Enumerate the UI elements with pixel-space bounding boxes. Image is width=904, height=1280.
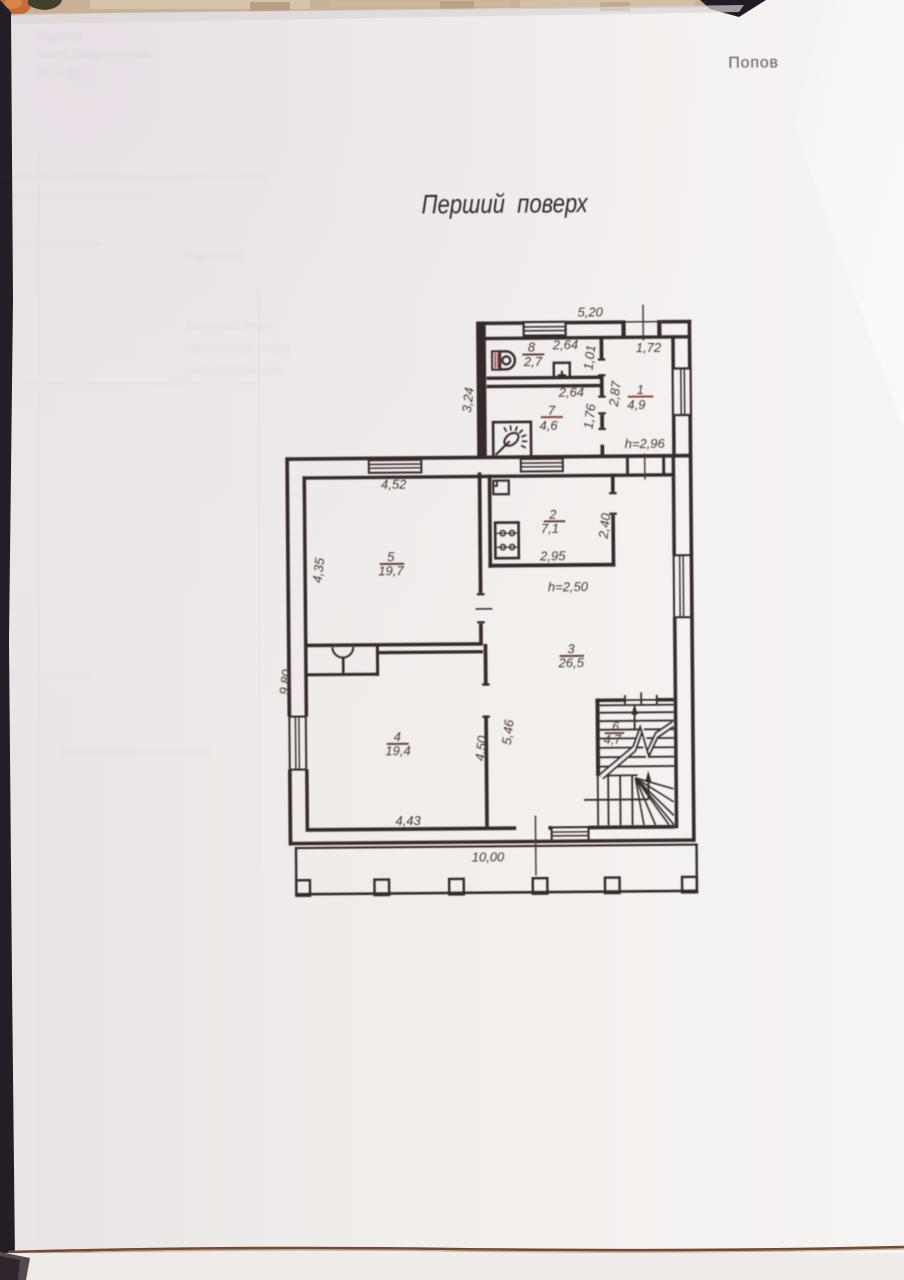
svg-text:Попов: Попов — [728, 54, 779, 71]
svg-text:h=2,50: h=2,50 — [548, 579, 589, 594]
svg-text:споруди громадян: споруди громадян — [185, 363, 286, 377]
svg-text:1,01: 1,01 — [581, 344, 599, 371]
svg-text:1: 1 — [637, 382, 644, 397]
svg-text:26,5: 26,5 — [557, 655, 584, 670]
svg-text:4,9: 4,9 — [627, 397, 645, 412]
svg-text:4,35: 4,35 — [309, 556, 327, 584]
svg-text:4,50: 4,50 — [472, 734, 490, 762]
svg-text:2,95: 2,95 — [539, 548, 566, 563]
svg-text:Перший поверх: Перший поверх — [421, 188, 589, 219]
svg-text:4,52: 4,52 — [381, 477, 407, 492]
svg-text:Технічний план с: Технічний план с — [185, 319, 279, 333]
svg-text:4: 4 — [394, 729, 401, 744]
svg-text:5,20: 5,20 — [577, 304, 603, 319]
svg-text:інвентаризація буд: інвентаризація буд — [185, 341, 290, 355]
svg-text:7: 7 — [548, 403, 556, 418]
svg-text:Квита Джерелознавст: Квита Джерелознавст — [36, 47, 158, 61]
svg-text:3,24: 3,24 — [459, 387, 477, 414]
svg-text:2,40: 2,40 — [595, 512, 613, 541]
svg-text:3: 3 — [567, 641, 575, 656]
svg-text:1,72: 1,72 — [636, 340, 662, 355]
svg-text:2,64: 2,64 — [558, 385, 584, 400]
svg-text:2,7: 2,7 — [523, 354, 543, 369]
svg-text:8: 8 — [528, 340, 536, 355]
svg-text:1,76: 1,76 — [581, 402, 599, 430]
svg-text:5: 5 — [387, 549, 395, 564]
svg-text:h=2,96: h=2,96 — [625, 436, 666, 451]
svg-text:№14 до: №14 до — [36, 65, 80, 79]
svg-text:4,7: 4,7 — [604, 733, 623, 747]
svg-text:2: 2 — [548, 507, 557, 522]
svg-text:10,00: 10,00 — [472, 849, 505, 864]
svg-text:19,4: 19,4 — [385, 743, 410, 758]
svg-text:19,7: 19,7 — [378, 563, 404, 578]
svg-text:Україна: Україна — [36, 28, 83, 43]
svg-text:2,87: 2,87 — [606, 380, 624, 409]
svg-text:9,80: 9,80 — [276, 668, 294, 696]
svg-text:6: 6 — [612, 720, 619, 734]
svg-text:4,43: 4,43 — [395, 813, 421, 828]
svg-text:Відомості: Відомості — [185, 248, 243, 263]
svg-text:7,1: 7,1 — [541, 521, 559, 536]
svg-text:5,46: 5,46 — [499, 718, 517, 746]
svg-text:2,64: 2,64 — [552, 337, 578, 352]
svg-text:4,6: 4,6 — [539, 418, 558, 433]
